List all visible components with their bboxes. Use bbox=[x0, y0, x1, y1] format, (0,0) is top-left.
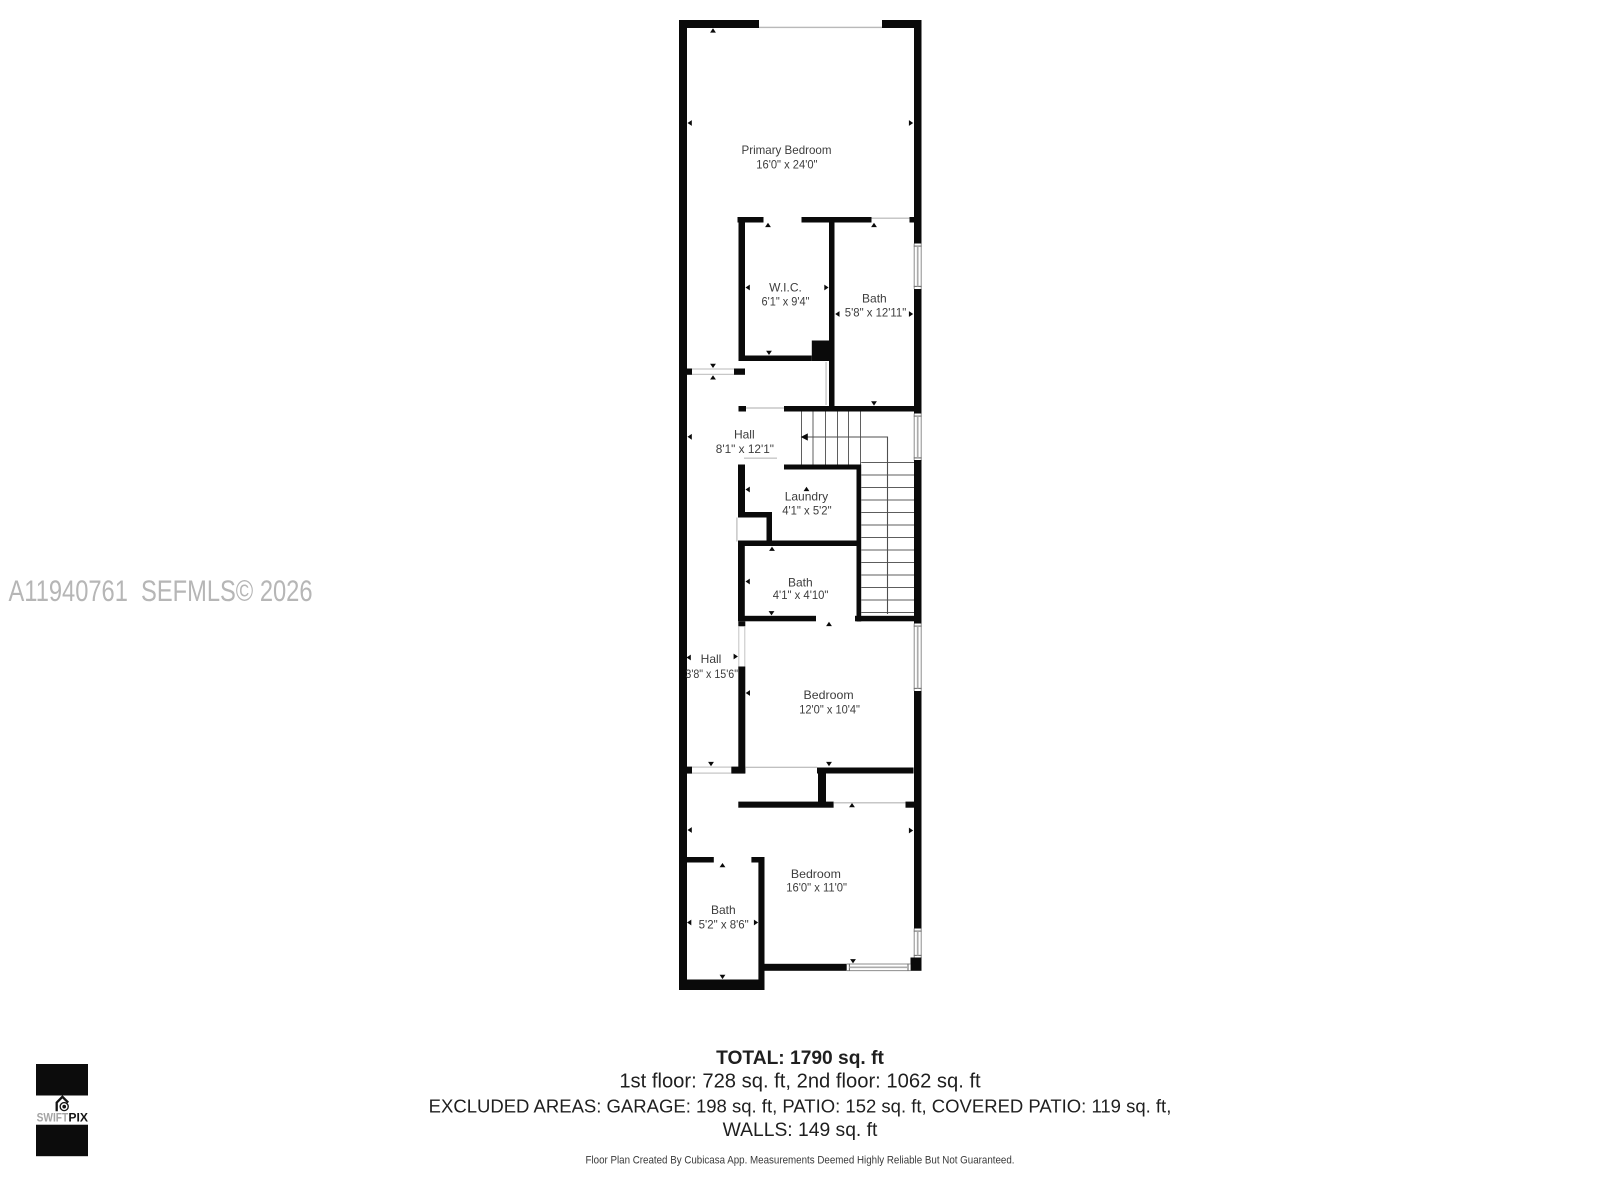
svg-text:EXCLUDED AREAS: GARAGE: 198 sq: EXCLUDED AREAS: GARAGE: 198 sq. ft, PATI… bbox=[429, 1096, 1172, 1117]
svg-text:SWIFT: SWIFT bbox=[37, 1111, 69, 1125]
svg-text:PIX: PIX bbox=[68, 1111, 88, 1125]
svg-text:Bedroom: Bedroom bbox=[791, 867, 841, 881]
svg-text:Laundry: Laundry bbox=[785, 489, 828, 503]
svg-text:Bath: Bath bbox=[862, 291, 887, 305]
svg-text:16'0" x 11'0": 16'0" x 11'0" bbox=[786, 881, 847, 895]
svg-text:1st floor: 728 sq. ft, 2nd flo: 1st floor: 728 sq. ft, 2nd floor: 1062 s… bbox=[619, 1070, 981, 1092]
svg-text:Bath: Bath bbox=[788, 575, 813, 589]
svg-text:Hall: Hall bbox=[701, 652, 722, 666]
svg-text:A11940761 SEFMLS© 2026: A11940761 SEFMLS© 2026 bbox=[9, 575, 313, 608]
svg-text:5'8" x 12'11": 5'8" x 12'11" bbox=[845, 306, 907, 320]
svg-text:4'1" x 4'10": 4'1" x 4'10" bbox=[773, 588, 829, 602]
svg-text:Hall: Hall bbox=[734, 428, 755, 442]
svg-text:4'1" x 5'2": 4'1" x 5'2" bbox=[782, 503, 831, 517]
svg-text:8'1" x 12'1": 8'1" x 12'1" bbox=[716, 442, 774, 456]
svg-text:W.I.C.: W.I.C. bbox=[769, 281, 802, 295]
svg-text:Bath: Bath bbox=[711, 903, 736, 917]
svg-text:5'2" x 8'6": 5'2" x 8'6" bbox=[699, 917, 749, 931]
svg-text:Bedroom: Bedroom bbox=[804, 688, 854, 702]
svg-text:WALLS: 149 sq. ft: WALLS: 149 sq. ft bbox=[723, 1120, 878, 1141]
svg-text:6'1" x 9'4": 6'1" x 9'4" bbox=[762, 294, 810, 308]
svg-text:Primary Bedroom: Primary Bedroom bbox=[742, 143, 832, 157]
svg-text:16'0" x 24'0": 16'0" x 24'0" bbox=[756, 158, 817, 172]
svg-text:12'0" x 10'4": 12'0" x 10'4" bbox=[799, 703, 860, 717]
svg-text:TOTAL: 1790 sq. ft: TOTAL: 1790 sq. ft bbox=[716, 1048, 884, 1069]
svg-text:3'8" x 15'6": 3'8" x 15'6" bbox=[685, 667, 738, 681]
svg-text:Floor Plan Created By Cubicasa: Floor Plan Created By Cubicasa App. Meas… bbox=[586, 1155, 1015, 1167]
